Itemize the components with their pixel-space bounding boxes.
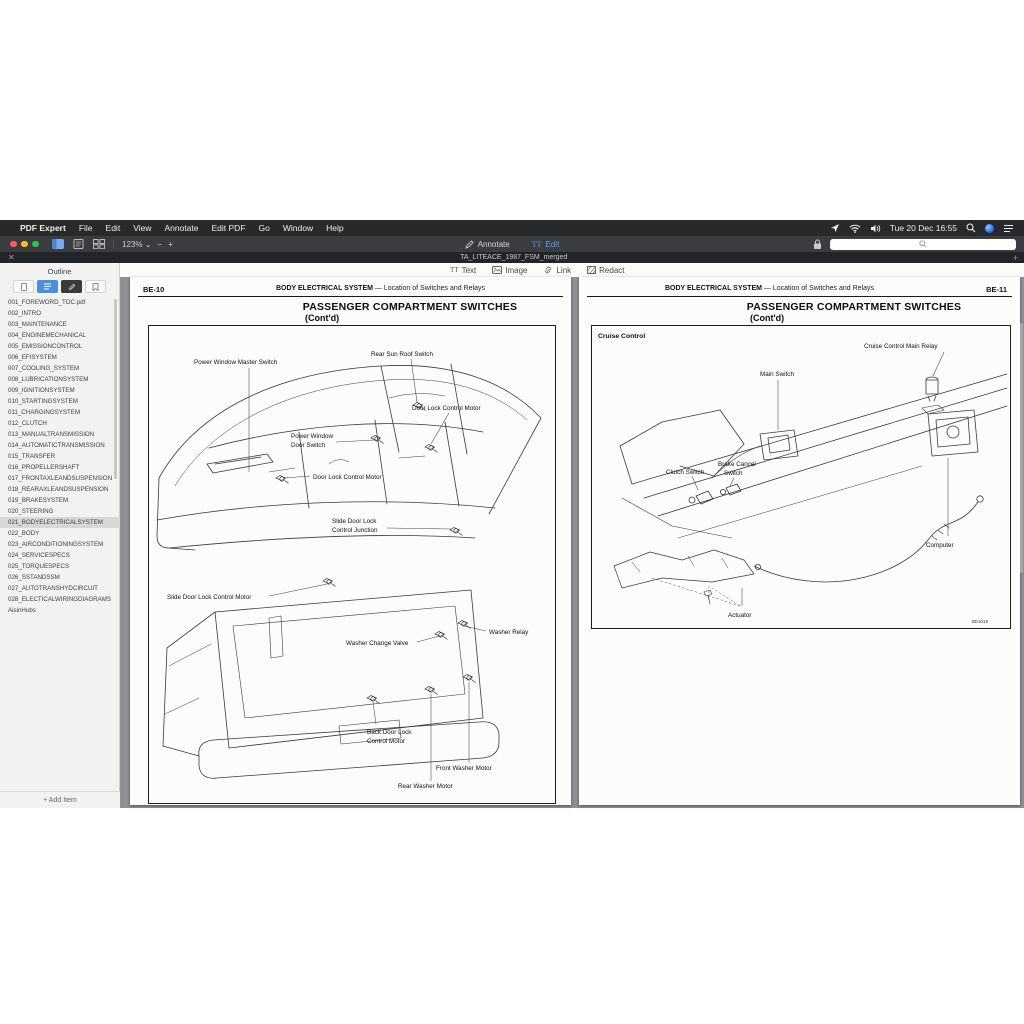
outline-item[interactable]: 028_ELECTICALWIRINGDIAGRAMS bbox=[0, 594, 120, 605]
menu-list-icon[interactable] bbox=[1003, 224, 1014, 233]
menu-file[interactable]: File bbox=[79, 223, 93, 233]
menu-view[interactable]: View bbox=[133, 223, 151, 233]
outline-item[interactable]: 009_IGNITIONSYSTEM bbox=[0, 385, 120, 396]
diagram-labels: Power Window Master Switch Rear Sun Roof… bbox=[167, 351, 529, 790]
zoom-out-button[interactable]: − bbox=[157, 240, 162, 249]
outline-item[interactable]: 011_CHARGINGSYSTEM bbox=[0, 407, 120, 418]
outline-item[interactable]: 018_REARAXLEANDSUSPENSION bbox=[0, 484, 120, 495]
figure-code: BE1019 bbox=[972, 619, 989, 624]
outline-item[interactable]: 014_AUTOMATICTRANSMISSION bbox=[0, 440, 120, 451]
tool-link[interactable]: Link bbox=[543, 266, 571, 275]
add-item-button[interactable]: + Add Item bbox=[0, 791, 120, 808]
menu-edit-pdf[interactable]: Edit PDF bbox=[212, 223, 246, 233]
volume-icon[interactable] bbox=[870, 224, 881, 233]
outline-item[interactable]: 025_TORQUESPECS bbox=[0, 561, 120, 572]
page-title-contd: (Cont'd) bbox=[305, 313, 339, 323]
redact-icon bbox=[587, 266, 596, 274]
outline-item[interactable]: 026_SSTANDSSM bbox=[0, 572, 120, 583]
leader-lines bbox=[249, 359, 486, 781]
label-switch: Switch bbox=[724, 470, 743, 477]
outline-item[interactable]: 017_FRONTAXLEANDSUSPENSION bbox=[0, 473, 120, 484]
page-title: PASSENGER COMPARTMENT SWITCHES bbox=[689, 301, 1019, 313]
outline-list: 001_FOREWORD_TOC.pdf 002_INTRO 003_MAINT… bbox=[0, 297, 120, 616]
page-number: BE-10 bbox=[143, 285, 164, 294]
thumbnails-view-icon[interactable] bbox=[13, 280, 34, 293]
spotlight-search-icon[interactable] bbox=[966, 223, 976, 233]
label-slide-door-lock: Slide Door Lock bbox=[332, 518, 377, 525]
outline-item[interactable]: 023_AIRCONDITIONINGSYSTEM bbox=[0, 539, 120, 550]
lock-icon[interactable] bbox=[813, 239, 822, 250]
tab-close-icon[interactable]: ✕ bbox=[8, 253, 15, 262]
menu-app-name[interactable]: PDF Expert bbox=[20, 223, 66, 233]
label-washer-change-valve: Washer Change Valve bbox=[346, 640, 409, 647]
cruise-control-diagram: Cruise Control Cruise Control Main Relay… bbox=[592, 326, 1010, 628]
label-rear-washer-motor: Rear Washer Motor bbox=[398, 783, 453, 790]
search-input[interactable] bbox=[830, 239, 1016, 250]
document-scrollbar[interactable] bbox=[1020, 323, 1023, 573]
edit-pdf-toolbar: TT Text Image Link Redact bbox=[120, 263, 1024, 278]
label-rear-sun-roof-switch: Rear Sun Roof Switch bbox=[371, 351, 433, 358]
menu-window[interactable]: Window bbox=[283, 223, 313, 233]
zoom-in-button[interactable]: + bbox=[168, 240, 173, 249]
dashed-leaders bbox=[652, 578, 740, 606]
label-door-switch: Door Switch bbox=[291, 442, 325, 449]
siri-icon[interactable] bbox=[985, 224, 994, 233]
search-icon bbox=[919, 240, 927, 248]
outline-item[interactable]: 001_FOREWORD_TOC.pdf bbox=[0, 297, 120, 308]
pdf-page-be11: BODY ELECTRICAL SYSTEM — Location of Swi… bbox=[579, 277, 1020, 805]
page-number: BE-11 bbox=[986, 285, 1007, 294]
wifi-icon[interactable] bbox=[849, 224, 861, 233]
label-door-lock-control-motor-2: Door Lock Control Motor bbox=[313, 474, 382, 481]
text-icon: TT bbox=[450, 266, 459, 274]
outline-item[interactable]: 020_STEERING bbox=[0, 506, 120, 517]
van-diagram: Power Window Master Switch Rear Sun Roof… bbox=[149, 326, 555, 803]
label-slide-door-lock-control-motor: Slide Door Lock Control Motor bbox=[167, 594, 251, 601]
document-tab-bar: ✕ TA_LITEACE_1987_FSM_merged + bbox=[0, 252, 1024, 263]
label-brake-cancel: Brake Cancel bbox=[718, 461, 756, 468]
label-computer: Computer bbox=[926, 542, 954, 549]
document-tab-title[interactable]: TA_LITEACE_1987_FSM_merged bbox=[15, 254, 1013, 261]
outline-sidebar: Outline 001_FOREWORD_TOC.pdf 002_INTRO 0… bbox=[0, 263, 120, 808]
leader-lines bbox=[692, 352, 948, 606]
tool-redact[interactable]: Redact bbox=[587, 266, 624, 275]
box-title-cruise-control: Cruise Control bbox=[598, 333, 645, 340]
label-control-junction: Control Junction bbox=[332, 527, 378, 534]
outline-item[interactable]: 013_MANUALTRANSMISSION bbox=[0, 429, 120, 440]
outline-item[interactable]: 015_TRANSFER bbox=[0, 451, 120, 462]
label-front-washer-motor: Front Washer Motor bbox=[436, 765, 492, 772]
outline-view-icon[interactable] bbox=[37, 280, 58, 293]
link-icon bbox=[543, 266, 553, 274]
zoom-level-dropdown[interactable]: 123% ⌄ bbox=[122, 240, 151, 249]
window-minimize-button[interactable] bbox=[21, 241, 28, 248]
sidebar-title: Outline bbox=[0, 263, 119, 276]
outline-item[interactable]: 019_BRAKESYSTEM bbox=[0, 495, 120, 506]
page-title-contd: (Cont'd) bbox=[750, 313, 784, 323]
location-arrow-icon[interactable] bbox=[830, 223, 840, 233]
bookmarks-view-icon[interactable] bbox=[85, 280, 106, 293]
outline-item[interactable]: 027_AUTOTRANSHYDCIRCUIT bbox=[0, 583, 120, 594]
outline-item[interactable]: 024_SERVICESPECS bbox=[0, 550, 120, 561]
van-line-art bbox=[157, 364, 541, 778]
desktop-screen: PDF Expert File Edit View Annotate Edit … bbox=[0, 220, 1024, 808]
outline-item[interactable]: 004_ENGINEMECHANICAL bbox=[0, 330, 120, 341]
header-rule bbox=[138, 296, 563, 297]
label-door-lock-control-motor-1: Door Lock Control Motor bbox=[412, 405, 481, 412]
menu-edit[interactable]: Edit bbox=[106, 223, 121, 233]
label-main-switch: Main Switch bbox=[760, 371, 794, 378]
label-power-window: Power Window bbox=[291, 433, 333, 440]
macos-menu-bar: PDF Expert File Edit View Annotate Edit … bbox=[0, 220, 1024, 236]
outline-item[interactable]: 022_BODY bbox=[0, 528, 120, 539]
outline-item[interactable]: 007_COOLING_SYSTEM bbox=[0, 363, 120, 374]
single-page-view-icon[interactable] bbox=[73, 239, 84, 249]
outline-item[interactable]: AisinHubs bbox=[0, 605, 120, 616]
outline-item[interactable]: 002_INTRO bbox=[0, 308, 120, 319]
label-washer-relay: Washer Relay bbox=[489, 629, 529, 636]
outline-item[interactable]: 016_PROPELLERSHAFT bbox=[0, 462, 120, 473]
outline-item[interactable]: 010_STARTINGSYSTEM bbox=[0, 396, 120, 407]
window-close-button[interactable] bbox=[10, 241, 17, 248]
label-back-door-lock: Back Door Lock bbox=[367, 729, 412, 736]
window-zoom-button[interactable] bbox=[32, 241, 39, 248]
section-header: BODY ELECTRICAL SYSTEM bbox=[276, 285, 373, 292]
figure-box-van: Power Window Master Switch Rear Sun Roof… bbox=[148, 325, 556, 804]
tool-text[interactable]: TT Text bbox=[450, 266, 476, 275]
multi-page-view-icon[interactable] bbox=[93, 239, 105, 249]
image-icon bbox=[492, 266, 502, 274]
section-subheader: — Location of Switches and Relays bbox=[375, 285, 485, 292]
label-control-motor: Control Motor bbox=[367, 738, 405, 745]
outline-item[interactable]: 005_EMISSIONCONTROL bbox=[0, 341, 120, 352]
sidebar-scrollbar[interactable] bbox=[114, 299, 117, 479]
annotations-view-icon[interactable] bbox=[61, 280, 82, 293]
header-rule bbox=[587, 296, 1012, 297]
section-header: BODY ELECTRICAL SYSTEM bbox=[665, 285, 762, 292]
section-subheader: — Location of Switches and Relays bbox=[764, 285, 874, 292]
figure-box-cruise-control: Cruise Control Cruise Control Main Relay… bbox=[591, 325, 1011, 629]
diagram-labels: Cruise Control Cruise Control Main Relay… bbox=[598, 333, 989, 624]
pdf-page-be10: BE-10 BODY ELECTRICAL SYSTEM — Location … bbox=[130, 277, 571, 805]
label-actuator: Actuator bbox=[728, 612, 751, 619]
sidebar-view-switcher bbox=[0, 280, 119, 293]
outline-item-selected[interactable]: 021_BODYELECTRICALSYSTEM bbox=[0, 517, 120, 528]
menu-annotate[interactable]: Annotate bbox=[164, 223, 198, 233]
document-area: BE-10 BODY ELECTRICAL SYSTEM — Location … bbox=[120, 277, 1024, 808]
label-cruise-control-main-relay: Cruise Control Main Relay bbox=[864, 343, 938, 350]
outline-item[interactable]: 008_LUBRICATIONSYSTEM bbox=[0, 374, 120, 385]
sidebar-toggle-icon[interactable] bbox=[52, 239, 64, 249]
tab-add-icon[interactable]: + bbox=[1013, 253, 1018, 263]
page-title: PASSENGER COMPARTMENT SWITCHES bbox=[245, 301, 575, 313]
label-power-window-master-switch: Power Window Master Switch bbox=[194, 359, 278, 366]
outline-item[interactable]: 003_MAINTENANCE bbox=[0, 319, 120, 330]
menu-help[interactable]: Help bbox=[326, 223, 343, 233]
menu-bar-clock[interactable]: Tue 20 Dec 16:55 bbox=[890, 223, 957, 233]
outline-item[interactable]: 006_EFISYSTEM bbox=[0, 352, 120, 363]
tool-image[interactable]: Image bbox=[492, 266, 527, 275]
outline-item[interactable]: 012_CLUTCH bbox=[0, 418, 120, 429]
label-clutch-switch: Clutch Switch bbox=[666, 469, 705, 476]
menu-go[interactable]: Go bbox=[259, 223, 270, 233]
